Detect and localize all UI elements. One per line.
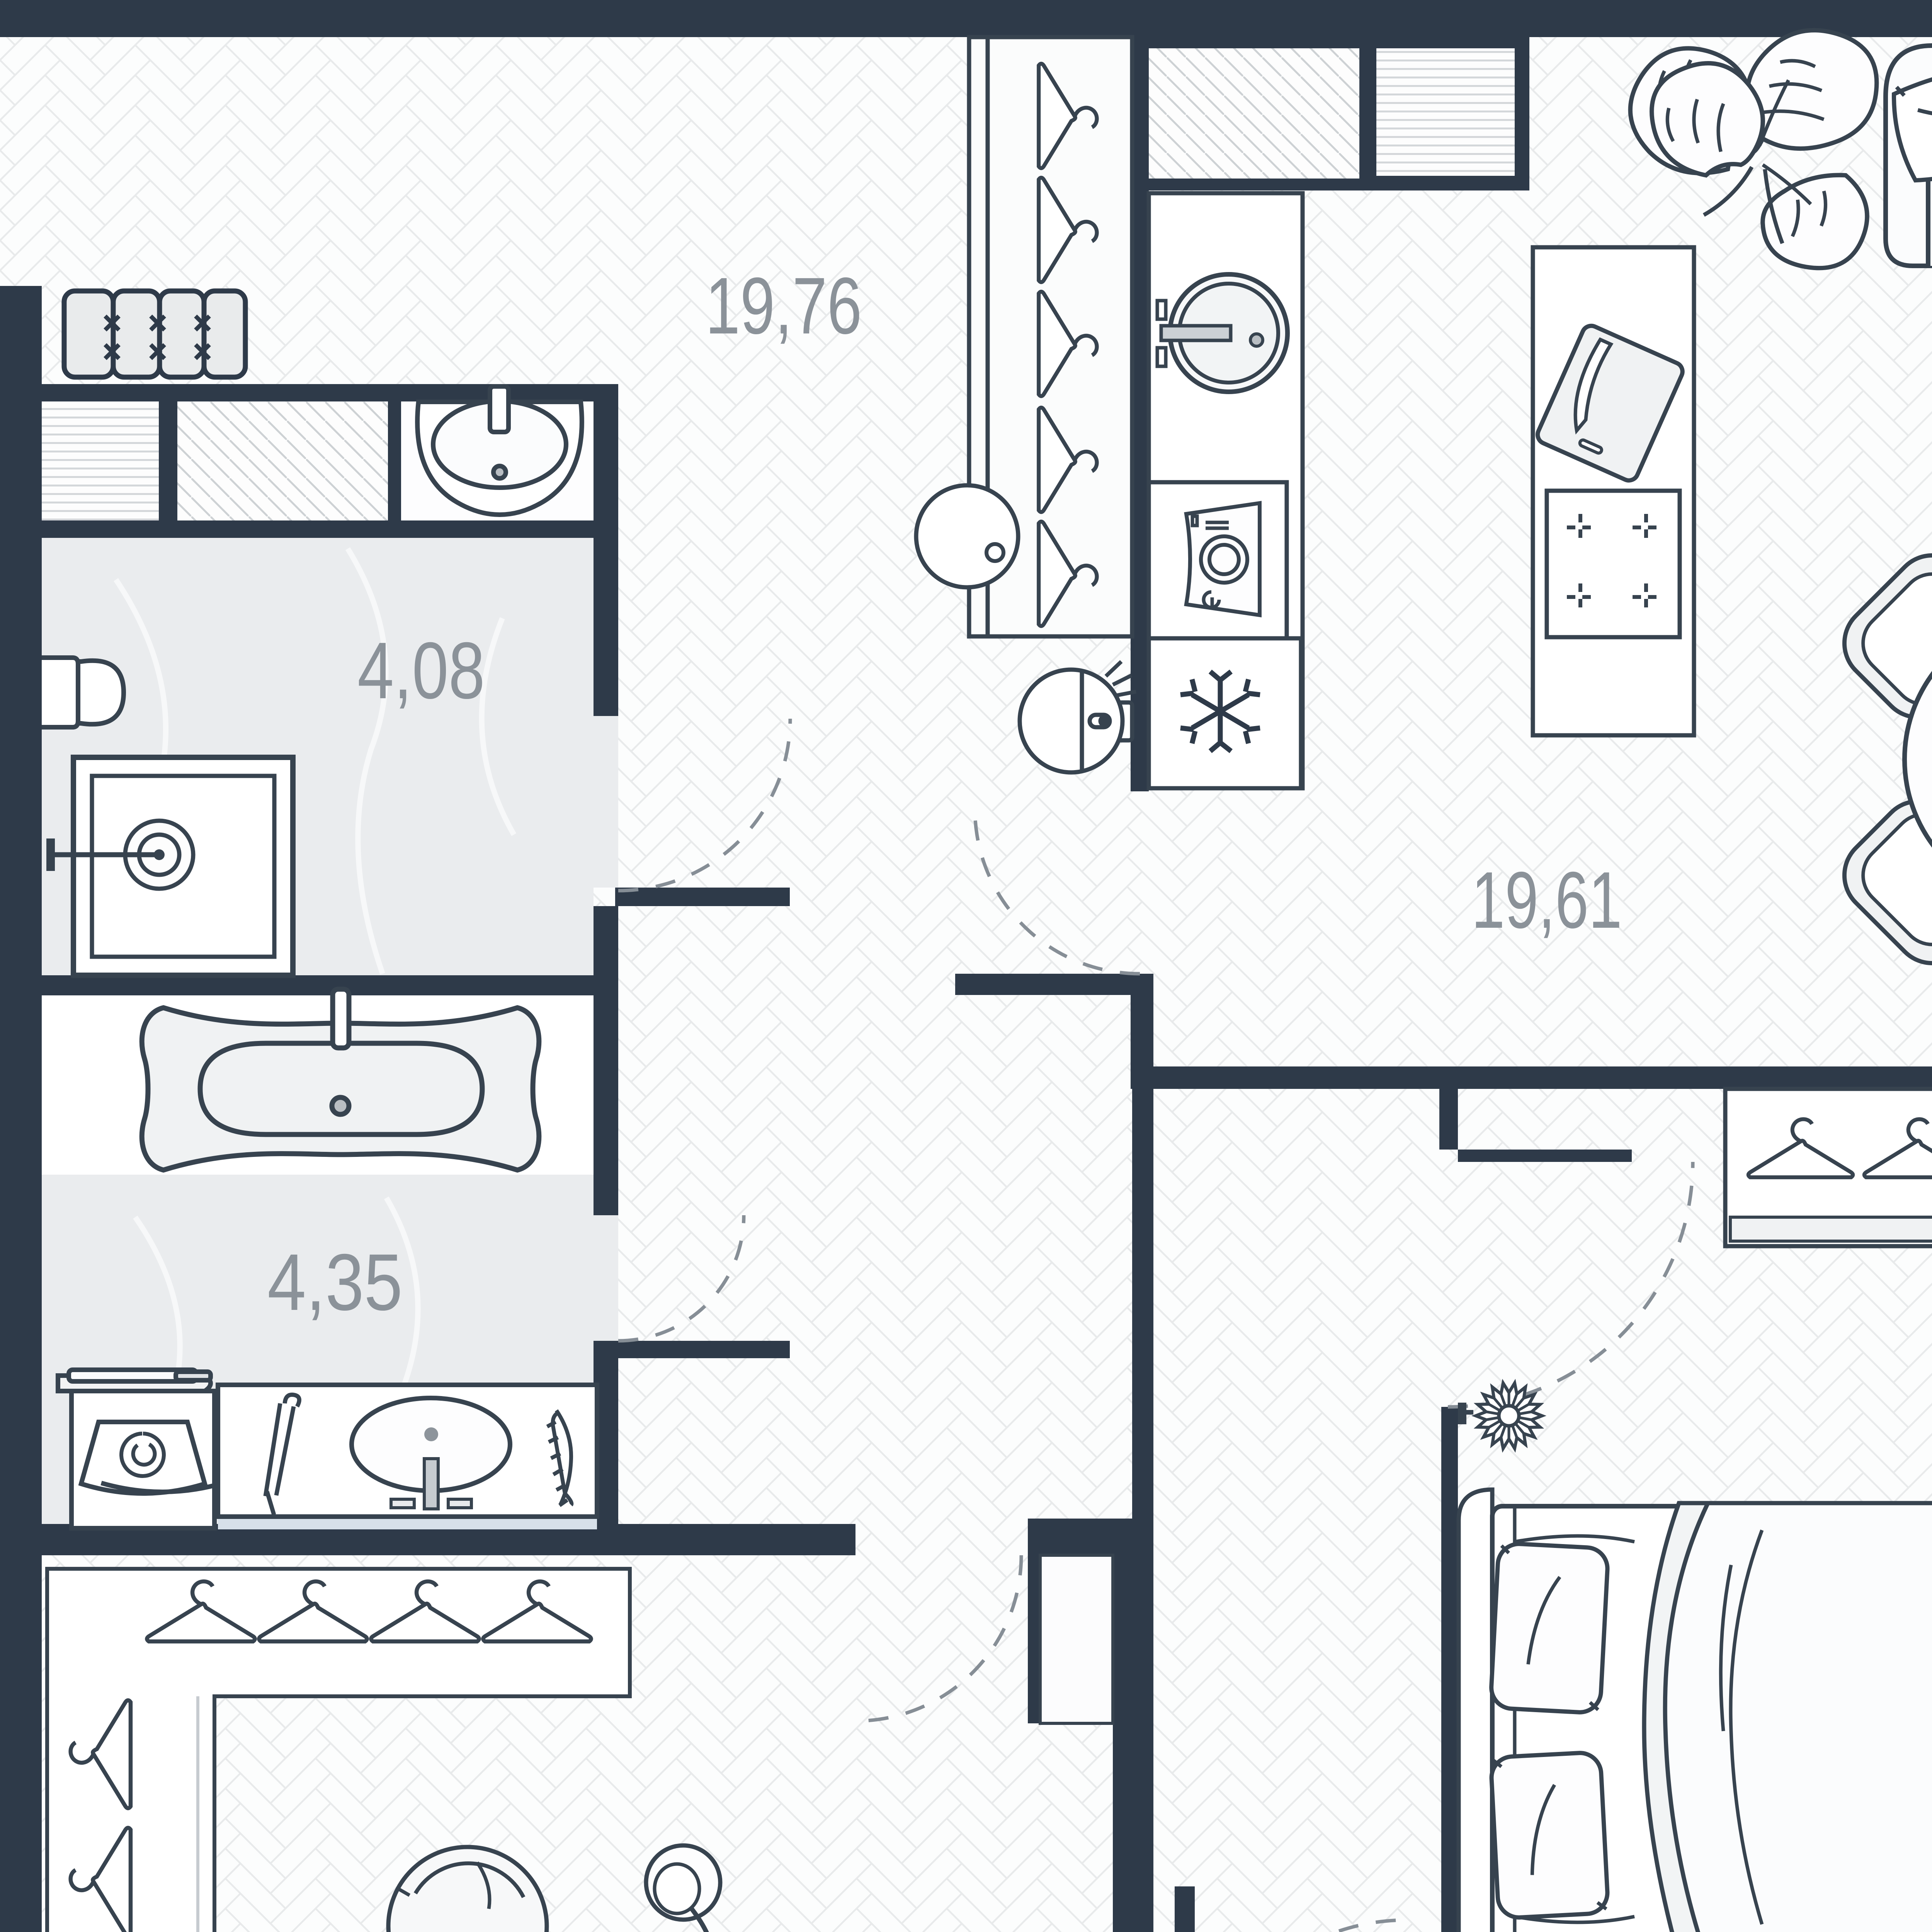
svg-text:19,76: 19,76 [706,261,862,351]
svg-text:4,08: 4,08 [357,626,485,716]
svg-text:4,35: 4,35 [267,1238,403,1327]
svg-text:19,61: 19,61 [1471,855,1622,945]
